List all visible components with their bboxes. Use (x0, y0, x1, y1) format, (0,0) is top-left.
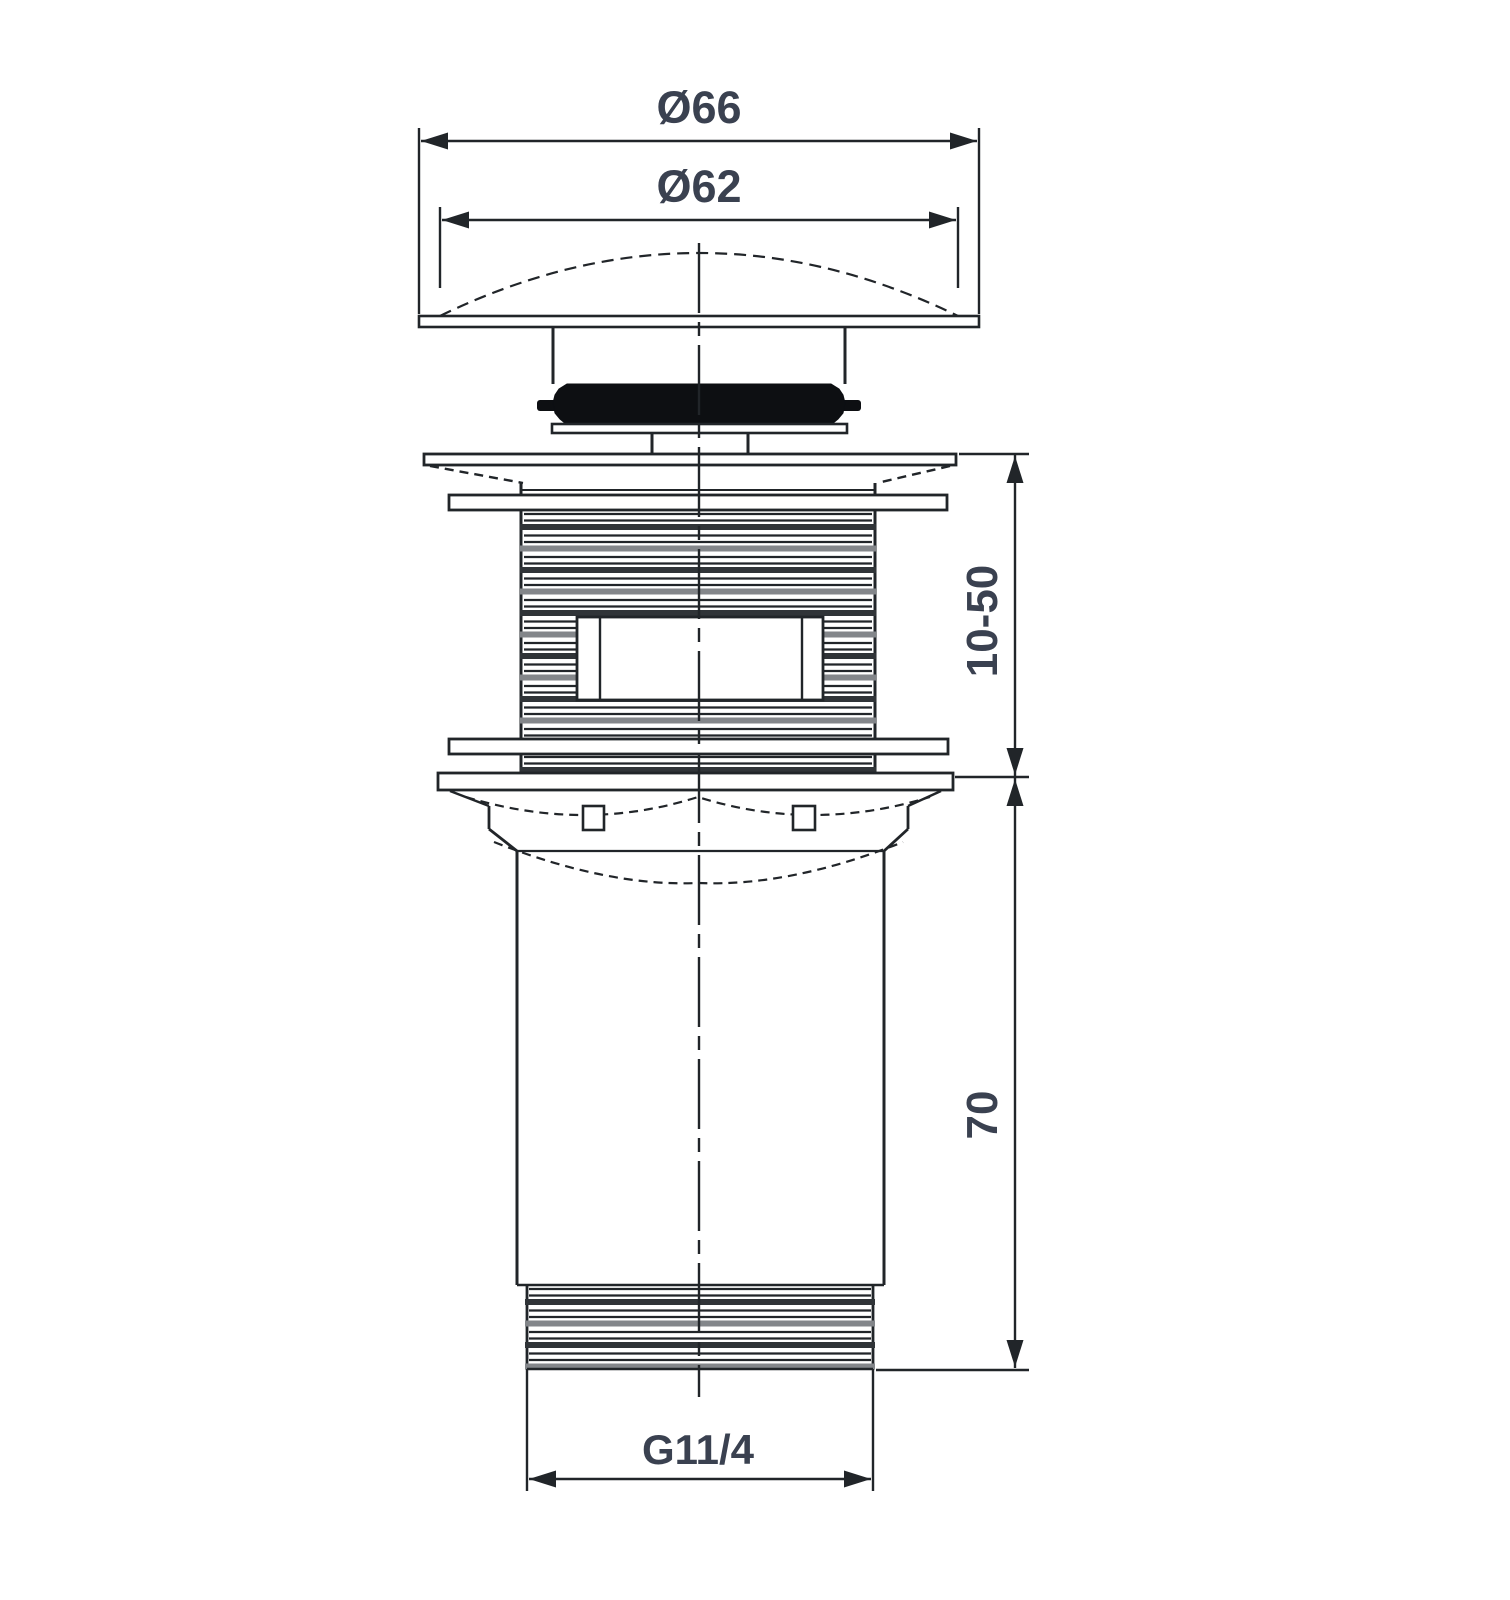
label-cap-dome-diameter: Ø62 (656, 161, 741, 212)
arrowhead-left (421, 133, 448, 150)
drain-valve-technical-drawing: Ø66 Ø62 10-50 70 G11/4 (0, 0, 1510, 1600)
arrowhead-left (442, 212, 469, 229)
arrowhead-down (1007, 748, 1024, 775)
lower-washer (438, 773, 953, 806)
label-tail-length: 70 (958, 1091, 1007, 1140)
label-clamping-range: 10-50 (958, 565, 1007, 678)
label-cap-outer-diameter: Ø66 (656, 82, 741, 133)
flange-taper-right (877, 466, 950, 483)
arrowhead-right (929, 212, 956, 229)
label-thread-size: G11/4 (642, 1426, 755, 1473)
arrowhead-up (1007, 456, 1024, 483)
arrowhead-down (1007, 1340, 1024, 1367)
arrowhead-right (844, 1471, 871, 1488)
technical-drawing-canvas: Ø66 Ø62 10-50 70 G11/4 (0, 0, 1510, 1600)
flange-taper-left (430, 466, 523, 483)
arrowhead-up (1007, 779, 1024, 806)
dimension-tail-length (876, 778, 1029, 1370)
nut-wing-tab-right (793, 806, 815, 830)
arrowhead-right (950, 133, 977, 150)
nut-wing-tab-left (583, 806, 604, 830)
arrowhead-left (529, 1471, 556, 1488)
body-cylinder (517, 851, 884, 1285)
